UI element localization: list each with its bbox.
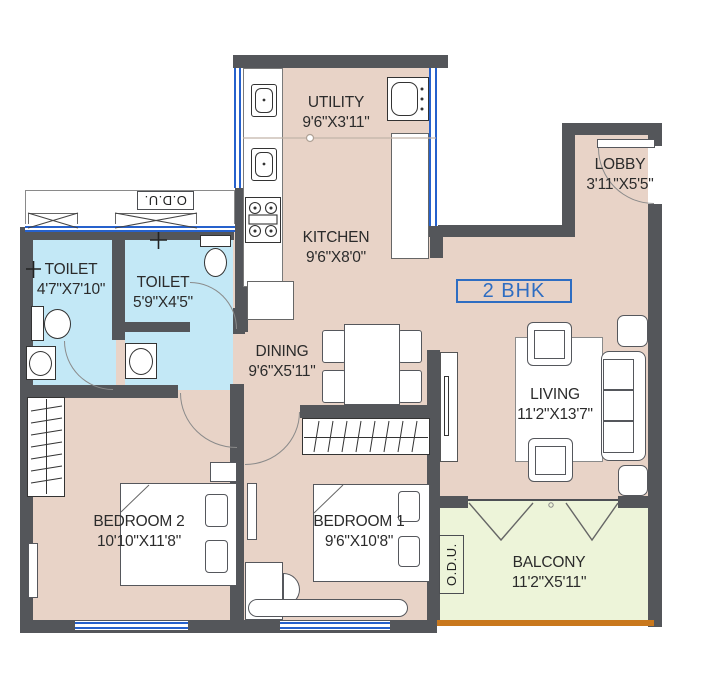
kitchen-name: KITCHEN — [303, 228, 370, 248]
dining-dims: 9'6"X5'11" — [248, 362, 315, 382]
utility-kitchen-divider-line — [243, 135, 436, 142]
lobby-label: LOBBY 3'11"X5'5" — [586, 155, 653, 194]
toilet2-label: TOILET 5'9"X4'5" — [133, 273, 193, 312]
living-dims: 11'2"X13'7" — [517, 405, 593, 425]
bed-fold-lines — [121, 485, 343, 513]
bedroom1-name: BEDROOM 1 — [313, 512, 404, 532]
toilet2-name: TOILET — [133, 273, 193, 293]
living-label: LIVING 11'2"X13'7" — [517, 385, 593, 424]
toilet2-dims: 5'9"X4'5" — [133, 293, 193, 313]
lobby-dims: 3'11"X5'5" — [586, 175, 653, 195]
bedroom2-name: BEDROOM 2 — [93, 512, 184, 532]
bedroom2-dims: 10'10"X11'8" — [93, 532, 184, 552]
shower-mixer-toilet2 — [150, 232, 167, 249]
balcony-name: BALCONY — [512, 553, 586, 573]
bedroom2-label: BEDROOM 2 10'10"X11'8" — [93, 512, 184, 551]
bedroom1-dims: 9'6"X10'8" — [313, 532, 404, 552]
bedroom1-label: BEDROOM 1 9'6"X10'8" — [313, 512, 404, 551]
odu-balcony-text: O.D.U. — [444, 543, 459, 586]
odu-top-text: O.D.U. — [144, 193, 187, 208]
floor-plan: O.D.U. O.D.U. 2 BHK UTILITY 9'6"X3'11" K… — [0, 0, 702, 676]
odu-balcony-label: O.D.U. — [439, 535, 464, 594]
lobby-name: LOBBY — [586, 155, 653, 175]
unit-type-text: 2 BHK — [483, 280, 546, 303]
balcony-dims: 11'2"X5'11" — [512, 573, 586, 593]
wardrobe-bedroom2-hatch — [31, 399, 62, 494]
toilet1-name: TOILET — [37, 260, 105, 280]
toilet1-label: TOILET 4'7"X7'10" — [37, 260, 105, 299]
toilet1-dims: 4'7"X7'10" — [37, 280, 105, 300]
balcony-label: BALCONY 11'2"X5'11" — [512, 553, 586, 592]
kitchen-dims: 9'6"X8'0" — [303, 248, 370, 268]
dining-label: DINING 9'6"X5'11" — [248, 342, 315, 381]
utility-name: UTILITY — [302, 93, 369, 113]
odu-top-label: O.D.U. — [137, 191, 194, 210]
living-name: LIVING — [517, 385, 593, 405]
balcony-folding-door — [468, 500, 618, 540]
ac-ledge-x-hatch — [28, 213, 197, 228]
utility-label: UTILITY 9'6"X3'11" — [302, 93, 369, 132]
kitchen-label: KITCHEN 9'6"X8'0" — [303, 228, 370, 267]
stove-burners — [249, 203, 277, 237]
wardrobe-bedroom1-hatch — [304, 421, 428, 452]
utility-dims: 9'6"X3'11" — [302, 113, 369, 133]
dining-name: DINING — [248, 342, 315, 362]
unit-type-badge: 2 BHK — [456, 279, 572, 303]
